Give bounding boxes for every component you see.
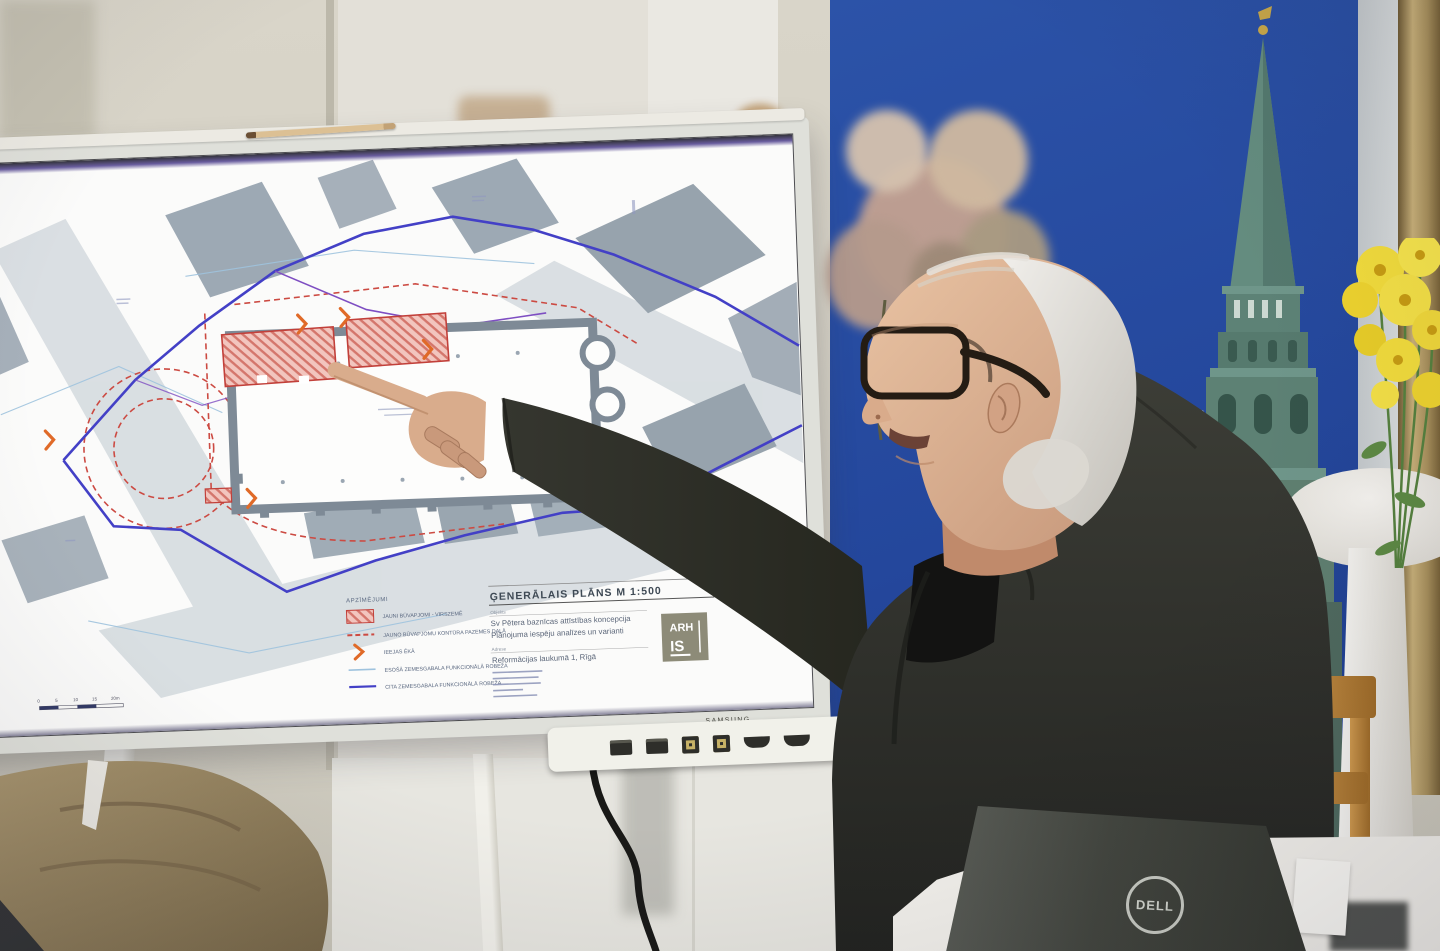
logo-bottom: IS: [670, 638, 685, 655]
display-screen: APZĪMĒJUMI JAUNI BŪVAPJOMI - VIRSZEMĒ JA…: [0, 133, 814, 739]
power-cable: [578, 754, 678, 951]
legend-label: IEEJAS ĒKĀ: [384, 648, 415, 656]
legend-swatch-lightblue: [349, 669, 376, 670]
chair-top-rail: [1284, 676, 1376, 718]
panel-seam: [692, 758, 695, 951]
hydrangea-bloom: [928, 110, 1028, 210]
usb-port: [646, 738, 669, 754]
usb-port: [610, 739, 633, 755]
hydrangea-bloom: [846, 110, 928, 192]
legend-label: CITA ZEMESGABALA FUNKCIONĀLĀ ROBEŽA: [385, 679, 502, 691]
plan-scale-bar: 0 5 10 15 20m: [37, 695, 123, 710]
tower-ball: [1258, 25, 1268, 35]
scale-tick: 20m: [111, 696, 120, 701]
yellow-flower-bouquet: [1336, 238, 1440, 668]
object-label: Objekts: [490, 610, 506, 616]
dell-logo: DELL: [1125, 875, 1186, 936]
contact-block-lines: [492, 670, 543, 697]
banner-partial-letter: A: [1188, 404, 1213, 443]
legend-swatch-blue: [349, 686, 376, 687]
plan-titleblock: ĢENERĀLAIS PLĀNS M 1:500 Objekts Sv Pēte…: [488, 578, 717, 697]
wall-corner-shadow: [0, 0, 95, 140]
scale-tick: 0: [37, 698, 40, 703]
hdmi-port: [784, 734, 810, 746]
usb-b-port: [682, 736, 700, 754]
scale-tick: 10: [73, 697, 79, 702]
dell-logo-text: DELL: [1136, 897, 1175, 914]
legend-label: ESOŠĀ ZEMESGABALA FUNKCIONĀLĀ ROBEŽA: [384, 661, 508, 674]
flower-heads: [1342, 238, 1440, 409]
napkin-stack: [1291, 858, 1350, 936]
site-plan-drawing: APZĪMĒJUMI JAUNI BŪVAPJOMI - VIRSZEMĒ JA…: [0, 134, 813, 738]
usb-b-port: [713, 734, 731, 752]
presentation-display: APZĪMĒJUMI JAUNI BŪVAPJOMI - VIRSZEMĒ JA…: [0, 117, 831, 756]
scale-tick: 15: [92, 696, 98, 701]
tower-rooster-icon: [1258, 6, 1272, 20]
object-line2: Plānojuma iespēju analīzes un varianti: [491, 626, 624, 640]
logo-top: ARH: [669, 622, 693, 635]
address-label: Adrese: [492, 646, 507, 652]
legend-swatch-red-hatch: [346, 609, 373, 623]
chair-rail: [1290, 772, 1368, 804]
scale-tick: 5: [55, 698, 58, 703]
seated-person-partial: [0, 750, 340, 951]
hydrangea-stems: [865, 300, 945, 440]
hdmi-port: [744, 736, 770, 748]
address-line: Reformācijas laukumā 1, Rīgā: [492, 652, 597, 665]
arhis-logo: ARH IS: [661, 612, 709, 661]
conference-room-photo: A: [0, 0, 1440, 951]
